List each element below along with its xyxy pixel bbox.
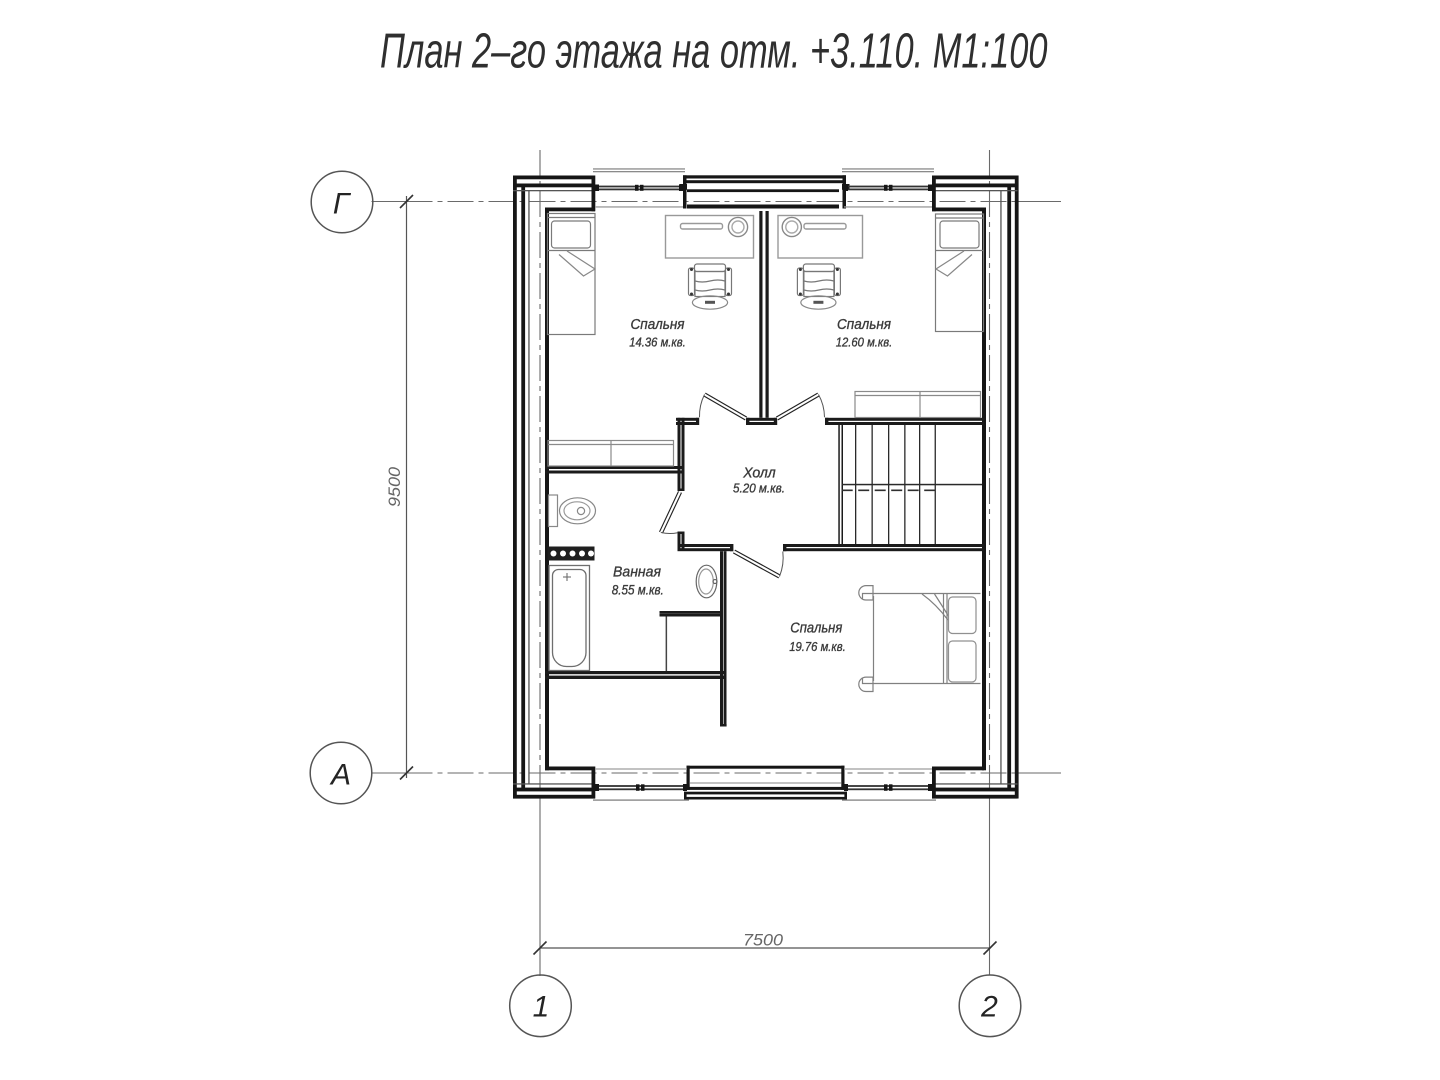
svg-text:19.76 м.кв.: 19.76 м.кв. <box>789 639 846 654</box>
svg-text:Спальня: Спальня <box>631 317 685 333</box>
svg-text:2: 2 <box>980 991 998 1024</box>
svg-text:Спальня: Спальня <box>790 621 842 637</box>
svg-text:5.20 м.кв.: 5.20 м.кв. <box>733 481 785 496</box>
svg-text:9500: 9500 <box>386 466 404 507</box>
svg-text:Холл: Холл <box>742 465 776 482</box>
svg-text:1: 1 <box>533 991 550 1024</box>
svg-text:Ванная: Ванная <box>613 564 661 581</box>
svg-text:А: А <box>329 759 351 792</box>
svg-text:7500: 7500 <box>743 932 784 950</box>
svg-text:Спальня: Спальня <box>837 317 891 333</box>
svg-text:Г: Г <box>333 188 352 221</box>
svg-text:8.55 м.кв.: 8.55 м.кв. <box>612 583 664 598</box>
svg-text:12.60 м.кв.: 12.60 м.кв. <box>836 335 893 350</box>
svg-text:14.36 м.кв.: 14.36 м.кв. <box>629 335 686 350</box>
svg-text:План 2–го этажа на отм. +3.110: План 2–го этажа на отм. +3.110. М1:100 <box>380 25 1048 79</box>
